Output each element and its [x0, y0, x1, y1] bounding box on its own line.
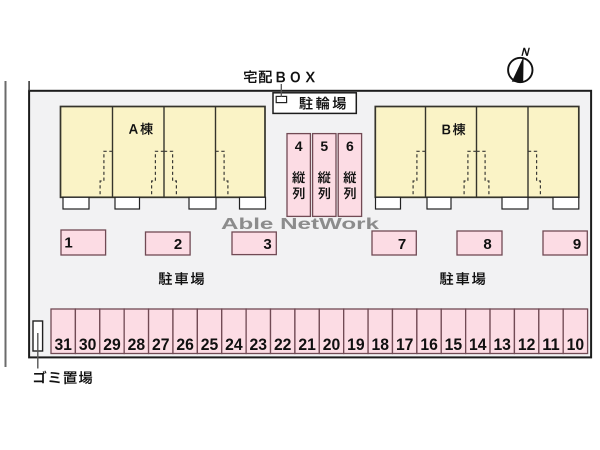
svg-text:14: 14: [469, 335, 487, 354]
svg-text:29: 29: [103, 335, 121, 354]
svg-text:26: 26: [176, 335, 194, 354]
svg-text:31: 31: [54, 335, 72, 354]
svg-text:5: 5: [320, 138, 328, 154]
svg-text:8: 8: [483, 236, 491, 253]
svg-text:17: 17: [396, 335, 414, 354]
svg-text:13: 13: [493, 335, 511, 354]
svg-text:16: 16: [420, 335, 438, 354]
svg-text:30: 30: [79, 335, 97, 354]
svg-text:1: 1: [64, 235, 72, 252]
svg-text:22: 22: [274, 335, 292, 354]
svg-text:2: 2: [174, 236, 182, 253]
svg-text:9: 9: [573, 236, 581, 253]
svg-text:10: 10: [567, 335, 585, 354]
svg-text:6: 6: [346, 138, 354, 154]
svg-text:15: 15: [445, 335, 463, 354]
svg-text:7: 7: [398, 236, 406, 253]
svg-text:12: 12: [518, 335, 536, 354]
svg-text:27: 27: [152, 335, 170, 354]
svg-text:25: 25: [201, 335, 219, 354]
svg-text:20: 20: [323, 335, 341, 354]
svg-text:19: 19: [347, 335, 365, 354]
svg-text:18: 18: [372, 335, 390, 354]
svg-text:Able NetWork: Able NetWork: [221, 216, 380, 233]
svg-text:24: 24: [225, 335, 243, 354]
svg-text:21: 21: [298, 335, 316, 354]
svg-text:11: 11: [542, 335, 560, 354]
svg-text:23: 23: [250, 335, 268, 354]
svg-text:3: 3: [263, 236, 271, 253]
svg-text:28: 28: [128, 335, 146, 354]
svg-text:4: 4: [295, 138, 303, 154]
